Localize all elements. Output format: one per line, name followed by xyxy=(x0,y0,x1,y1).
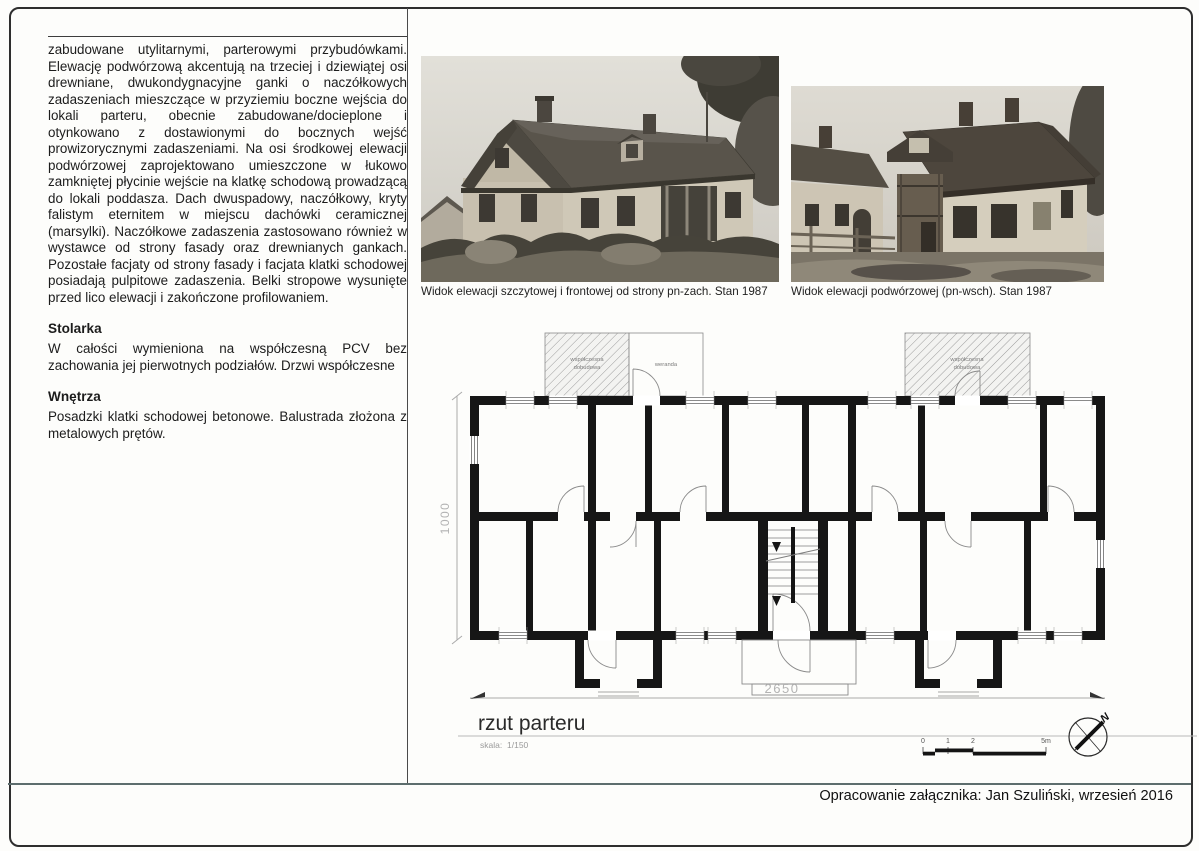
dimension-2650-label: 2650 xyxy=(765,681,800,696)
scalebar-tick-1: 1 xyxy=(946,738,950,745)
paragraph-elevation-description: zabudowane utylitarnymi, parterowymi prz… xyxy=(48,42,407,306)
floor-plan: współczesna dobudowa weranda współczesna… xyxy=(430,325,1199,765)
plan-windows-sides xyxy=(470,436,1106,568)
plan-addition-right: współczesna dobudowa xyxy=(905,333,1030,396)
photo-courtyard-illustration xyxy=(791,86,1104,282)
scalebar-tick-0: 0 xyxy=(921,738,925,745)
column-divider xyxy=(407,8,408,784)
plan-porch-left xyxy=(575,640,662,696)
text-column-top-rule xyxy=(48,36,407,37)
footer-credit: Opracowanie załącznika: Jan Szuliński, w… xyxy=(819,788,1173,804)
scanned-page: zabudowane utylitarnymi, parterowymi prz… xyxy=(0,0,1199,851)
north-arrow-icon: N xyxy=(1069,710,1113,756)
section-heading-stolarka: Stolarka xyxy=(48,321,407,337)
text-column: zabudowane utylitarnymi, parterowymi prz… xyxy=(48,38,407,442)
photo-courtyard-elevation xyxy=(791,86,1104,282)
plan-scalebar: 0 1 2 5m xyxy=(921,738,1051,756)
scalebar-tick-3: 5m xyxy=(1041,738,1051,745)
paragraph-stolarka: W całości wymieniona na współczesną PCV … xyxy=(48,341,407,374)
paragraph-wnetrza: Posadzki klatki schodowej betonowe. Balu… xyxy=(48,409,407,442)
photo-caption-courtyard: Widok elewacji podwórzowej (pn-wsch). St… xyxy=(791,285,1111,298)
photo-front-gable-illustration xyxy=(421,56,779,282)
scalebar-tick-2: 2 xyxy=(971,738,975,745)
plan-addition-left: współczesna dobudowa xyxy=(545,333,629,396)
photo-caption-front-gable: Widok elewacji szczytowej i frontowej od… xyxy=(421,285,781,298)
plan-veranda: weranda xyxy=(629,333,703,396)
section-heading-wnetrza: Wnętrza xyxy=(48,389,407,405)
dimension-1000-label: 1000 xyxy=(438,502,452,535)
plan-vestibule xyxy=(742,640,856,695)
plan-staircase xyxy=(766,527,820,606)
plan-scale-label: skala: xyxy=(480,740,502,750)
photo-front-gable-elevation xyxy=(421,56,779,282)
plan-title: rzut parteru xyxy=(478,712,585,735)
plan-scale-value: 1/150 xyxy=(507,740,529,750)
veranda-label: weranda xyxy=(654,362,678,368)
plan-dimension-vertical: 1000 xyxy=(438,392,462,644)
footer-rule xyxy=(8,783,1191,785)
